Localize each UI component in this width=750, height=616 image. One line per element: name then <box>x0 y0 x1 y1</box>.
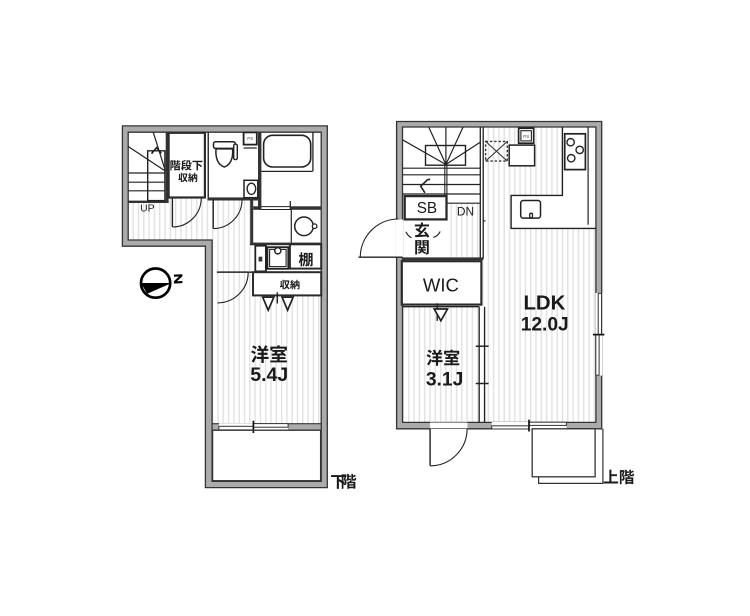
svg-text:3.1J: 3.1J <box>426 370 464 391</box>
svg-text:PS: PS <box>247 136 253 141</box>
svg-text:5.4J: 5.4J <box>250 364 288 386</box>
svg-text:LDK: LDK <box>523 292 565 314</box>
svg-text:UP: UP <box>140 204 155 215</box>
svg-text:PS: PS <box>523 134 529 139</box>
svg-text:12.0J: 12.0J <box>521 315 569 336</box>
svg-text:DN: DN <box>457 205 474 219</box>
svg-text:WIC: WIC <box>423 274 459 295</box>
svg-text:SB: SB <box>417 200 437 217</box>
